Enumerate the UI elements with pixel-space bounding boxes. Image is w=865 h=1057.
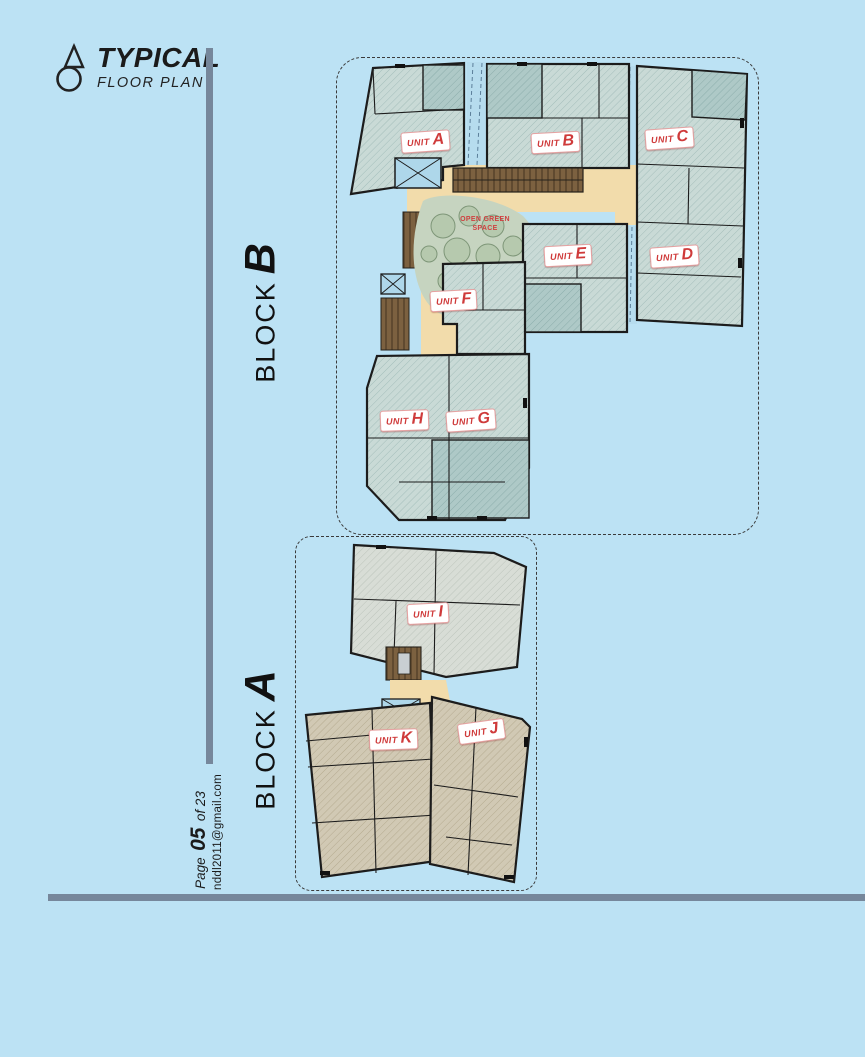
page-number-label: Page 05 of 23 xyxy=(187,791,211,889)
page-number-prefix: Page xyxy=(193,857,208,889)
unit-letter: F xyxy=(461,291,472,307)
unit-prefix: UNIT xyxy=(436,297,459,307)
page-number-value: 05 xyxy=(187,828,210,851)
block-a-plan xyxy=(296,537,533,887)
unit-prefix: UNIT xyxy=(407,138,430,149)
block-a-letter: A xyxy=(237,670,285,701)
unit-prefix: UNIT xyxy=(413,610,436,620)
unit-letter: E xyxy=(575,246,586,263)
unit-prefix: UNIT xyxy=(375,736,398,746)
unit-letter: B xyxy=(562,133,574,150)
unit-k-label: UNITK xyxy=(369,728,419,751)
unit-letter: G xyxy=(477,411,491,428)
block-b-boundary xyxy=(336,57,759,535)
compass-logo-icon xyxy=(54,42,96,100)
bottom-divider-bar xyxy=(48,894,865,901)
unit-letter: J xyxy=(488,721,499,738)
unit-c-d-footprint xyxy=(637,66,747,326)
unit-d-label: UNITD xyxy=(649,244,700,268)
elevator-shaft-mid xyxy=(381,274,409,350)
unit-prefix: UNIT xyxy=(651,135,674,146)
unit-letter: C xyxy=(676,129,689,146)
email-label: nddl2011@gmail.com xyxy=(212,774,224,890)
unit-h-g-footprint xyxy=(367,354,529,520)
unit-i-label: UNITI xyxy=(406,602,449,625)
unit-letter: K xyxy=(400,730,412,746)
block-b-label: BLOCKB xyxy=(237,243,286,383)
block-b-word: BLOCK xyxy=(251,281,281,383)
page-title: TYPICAL xyxy=(97,44,220,72)
unit-f-label: UNITF xyxy=(429,289,477,312)
unit-prefix: UNIT xyxy=(452,417,475,428)
block-b-letter: B xyxy=(237,243,285,274)
unit-letter: I xyxy=(438,604,443,620)
open-green-space-label: OPEN GREEN SPACE xyxy=(447,215,523,233)
stairs-block-a xyxy=(386,647,421,680)
unit-prefix: UNIT xyxy=(386,417,409,427)
elevator-shaft-top xyxy=(395,158,441,188)
unit-prefix: UNIT xyxy=(464,727,488,739)
unit-c-label: UNITC xyxy=(644,126,695,150)
unit-h-label: UNITH xyxy=(380,409,430,432)
unit-b-label: UNITB xyxy=(530,131,580,155)
page-title-group: TYPICAL FLOOR PLAN xyxy=(97,44,220,91)
unit-e-label: UNITE xyxy=(543,244,592,267)
unit-prefix: UNIT xyxy=(656,253,679,264)
unit-letter: H xyxy=(411,411,423,427)
unit-letter: A xyxy=(432,132,445,149)
page-subtitle: FLOOR PLAN xyxy=(97,75,220,91)
block-a-label: BLOCKA xyxy=(237,670,286,810)
page-number-suffix: of 23 xyxy=(193,791,208,821)
unit-prefix: UNIT xyxy=(537,139,560,149)
unit-letter: D xyxy=(681,247,694,264)
floor-plan-page: TYPICAL FLOOR PLAN BLOCKB BLOCKA Page 05… xyxy=(0,0,865,1057)
open-green-space-line1: OPEN GREEN xyxy=(447,215,523,224)
unit-prefix: UNIT xyxy=(550,252,573,262)
block-a-boundary xyxy=(295,536,537,891)
unit-a-label: UNITA xyxy=(400,129,451,153)
unit-e-footprint xyxy=(523,224,627,332)
unit-g-label: UNITG xyxy=(445,408,496,432)
vertical-divider-bar xyxy=(206,48,213,764)
block-a-word: BLOCK xyxy=(251,708,281,810)
open-green-space-line2: SPACE xyxy=(447,224,523,233)
